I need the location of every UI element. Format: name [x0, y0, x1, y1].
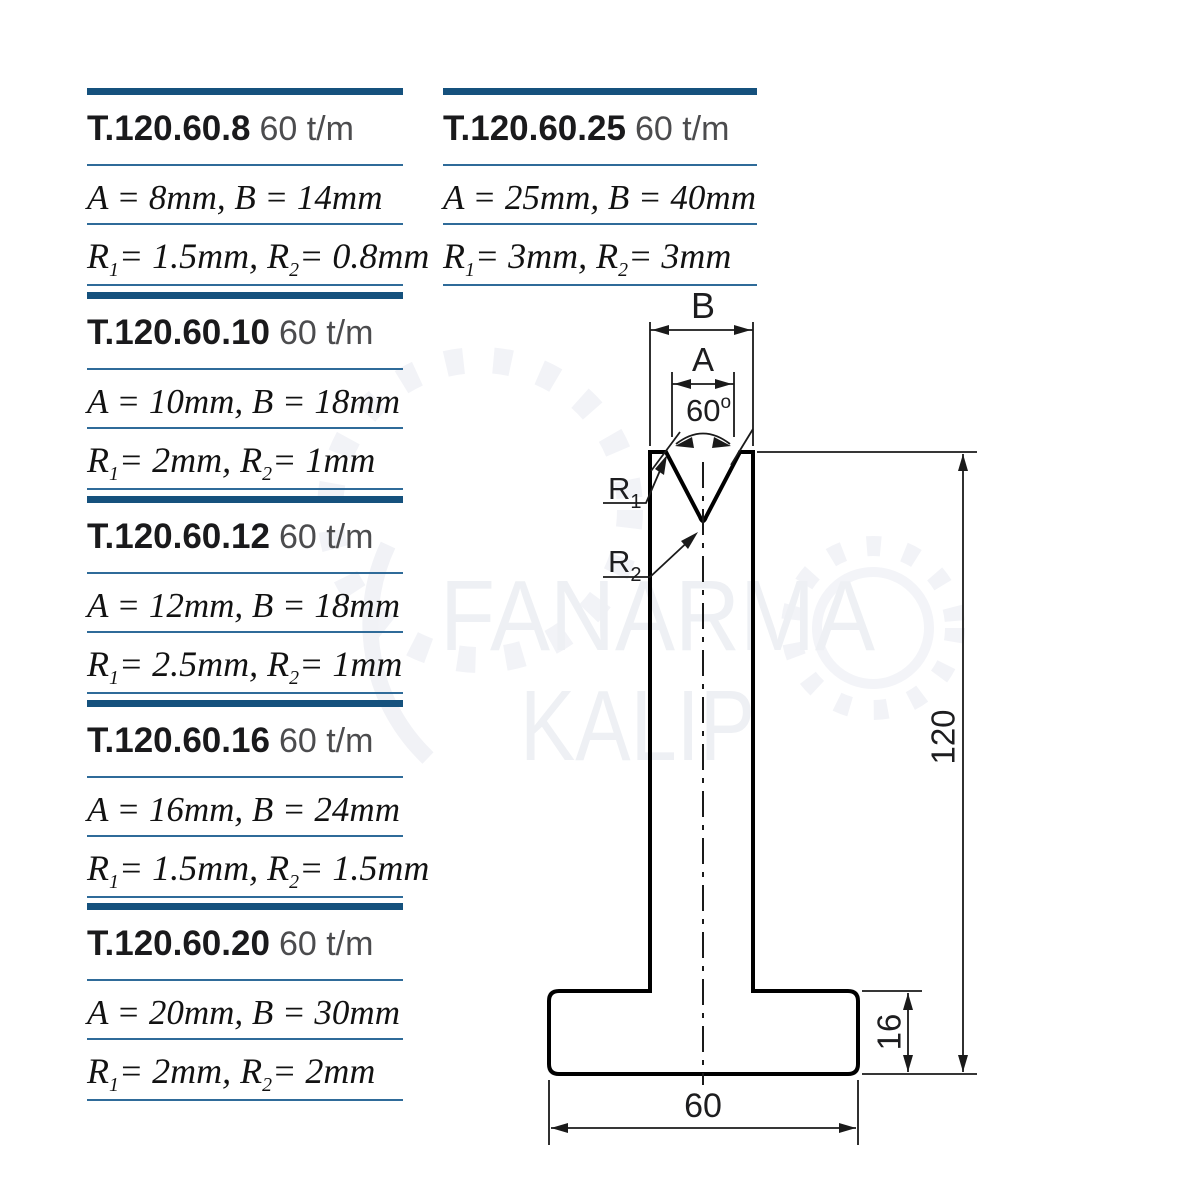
r1-subscript: 1 — [465, 259, 475, 281]
model-number: T.120.60.16 — [87, 721, 270, 760]
spec-title-row: T.120.60.2060 t/m — [87, 922, 403, 973]
separator-rule — [87, 368, 403, 370]
arrowhead-bottom — [958, 1055, 968, 1072]
spec-title-row: T.120.60.1060 t/m — [87, 311, 403, 362]
base-height-dimension-label: 16 — [871, 1014, 908, 1051]
angle-value: 60 — [686, 393, 720, 428]
tonnage: 60 t/m — [279, 722, 373, 760]
r1-value: = 2mm, R — [119, 1051, 262, 1091]
arrowhead-right — [839, 1123, 856, 1133]
die-technical-drawing: B A 60o R1 R2 — [520, 280, 1000, 1180]
spec-block-t1206012: T.120.60.1260 t/m A = 12mm, B = 18mm R1=… — [87, 496, 403, 694]
r2-value: = 1mm — [272, 440, 375, 480]
r1-name: R — [87, 1051, 109, 1091]
tonnage: 60 t/m — [279, 925, 373, 963]
separator-bar-thick — [87, 496, 403, 503]
separator-rule — [87, 427, 403, 429]
model-number: T.120.60.20 — [87, 924, 270, 963]
separator-bar-thick — [443, 88, 757, 95]
separator-rule — [87, 896, 403, 898]
r2-value: = 2mm — [272, 1051, 375, 1091]
r2-subscript: 2 — [289, 871, 299, 893]
arrowhead-bottom — [903, 1055, 913, 1072]
r2-value: = 3mm — [628, 236, 731, 276]
r1-value: = 2.5mm, R — [119, 644, 289, 684]
r2-subscript: 2 — [630, 564, 641, 586]
r1-subscript: 1 — [109, 1074, 119, 1096]
r2-subscript: 2 — [618, 259, 628, 281]
r2-value: = 0.8mm — [299, 236, 429, 276]
r2-value: = 1.5mm — [299, 848, 429, 888]
spec-title-row: T.120.60.1260 t/m — [87, 515, 403, 566]
arrowhead-top — [903, 993, 913, 1010]
dimensions-text: A = 8mm, B = 14mm — [87, 175, 403, 220]
radii-text: R1= 2mm, R2= 2mm — [87, 1048, 403, 1094]
r2-subscript: 2 — [289, 667, 299, 689]
separator-bar-thick — [87, 700, 403, 707]
r1-subscript: 1 — [630, 491, 641, 513]
r2-label: R2 — [608, 544, 642, 586]
separator-rule — [87, 164, 403, 166]
radii-text: R1= 1.5mm, R2= 0.8mm — [87, 233, 403, 279]
r1-name: R — [87, 236, 109, 276]
r2-subscript: 2 — [262, 463, 272, 485]
spec-block-t120608: T.120.60.860 t/m A = 8mm, B = 14mm R1= 1… — [87, 88, 403, 286]
r1-name: R — [443, 236, 465, 276]
r1-subscript: 1 — [109, 667, 119, 689]
spec-block-t1206010: T.120.60.1060 t/m A = 10mm, B = 18mm R1=… — [87, 292, 403, 490]
tonnage: 60 t/m — [279, 314, 373, 352]
dimensions-text: A = 10mm, B = 18mm — [87, 379, 403, 424]
arrowhead-right — [715, 379, 732, 389]
a-dimension-label: A — [692, 341, 714, 378]
r1-value: = 3mm, R — [475, 236, 618, 276]
separator-bar-thick — [87, 903, 403, 910]
arrowhead-top — [958, 454, 968, 471]
r1-value: = 2mm, R — [119, 440, 262, 480]
separator-rule — [87, 284, 403, 286]
spec-block-t1206020: T.120.60.2060 t/m A = 20mm, B = 30mm R1=… — [87, 903, 403, 1101]
r2-name: R — [608, 544, 630, 579]
model-number: T.120.60.12 — [87, 517, 270, 556]
angle-label: 60o — [686, 392, 731, 428]
height-dimension-label: 120 — [925, 709, 962, 764]
separator-rule — [87, 1038, 403, 1040]
r2-subscript: 2 — [262, 1074, 272, 1096]
r1-name: R — [608, 471, 630, 506]
r1-name: R — [87, 644, 109, 684]
separator-rule — [443, 223, 757, 225]
r1-name: R — [87, 848, 109, 888]
dimensions-text: A = 20mm, B = 30mm — [87, 990, 403, 1035]
r1-label: R1 — [608, 471, 642, 513]
base-width-dimension: 60 — [549, 1080, 858, 1145]
base-width-dimension-label: 60 — [684, 1087, 722, 1125]
radii-text: R1= 1.5mm, R2= 1.5mm — [87, 845, 403, 891]
spec-title-row: T.120.60.860 t/m — [87, 107, 403, 158]
model-number: T.120.60.8 — [87, 109, 250, 148]
arrowhead-right — [734, 325, 751, 335]
r1-subscript: 1 — [109, 871, 119, 893]
die-spec-sheet: FANARMA KALIP T.120.60.860 t/m A = 8mm, … — [0, 0, 1181, 1181]
separator-rule — [87, 776, 403, 778]
separator-rule — [443, 164, 757, 166]
model-number: T.120.60.10 — [87, 313, 270, 352]
radii-text: R1= 3mm, R2= 3mm — [443, 233, 757, 279]
tonnage: 60 t/m — [635, 110, 729, 148]
b-dimension-label: B — [691, 285, 715, 326]
dimensions-text: A = 25mm, B = 40mm — [443, 175, 757, 220]
arrowhead-left — [674, 379, 691, 389]
tonnage: 60 t/m — [279, 518, 373, 556]
degree-superscript: o — [720, 392, 731, 413]
separator-bar-thick — [87, 88, 403, 95]
separator-bar-thick — [87, 292, 403, 299]
dimensions-text: A = 16mm, B = 24mm — [87, 787, 403, 832]
separator-rule — [87, 488, 403, 490]
r2-subscript: 2 — [289, 259, 299, 281]
height-dimension: 120 — [757, 452, 977, 1074]
arrowhead-left — [551, 1123, 568, 1133]
r1-subscript: 1 — [109, 463, 119, 485]
spec-block-t1206025: T.120.60.2560 t/m A = 25mm, B = 40mm R1=… — [443, 88, 757, 286]
separator-rule — [87, 572, 403, 574]
tonnage: 60 t/m — [259, 110, 353, 148]
r1-value: = 1.5mm, R — [119, 236, 289, 276]
r1-value: = 1.5mm, R — [119, 848, 289, 888]
r1-subscript: 1 — [109, 259, 119, 281]
spec-title-row: T.120.60.2560 t/m — [443, 107, 757, 158]
model-number: T.120.60.25 — [443, 109, 626, 148]
spec-block-t1206016: T.120.60.1660 t/m A = 16mm, B = 24mm R1=… — [87, 700, 403, 898]
dimensions-text: A = 12mm, B = 18mm — [87, 583, 403, 628]
r1-name: R — [87, 440, 109, 480]
arrowhead-left — [652, 325, 669, 335]
base-height-dimension: 16 — [862, 991, 922, 1072]
radii-text: R1= 2.5mm, R2= 1mm — [87, 641, 403, 687]
separator-rule — [87, 223, 403, 225]
r2-value: = 1mm — [299, 644, 402, 684]
spec-title-row: T.120.60.1660 t/m — [87, 719, 403, 770]
separator-rule — [87, 1099, 403, 1101]
separator-rule — [87, 835, 403, 837]
separator-rule — [87, 692, 403, 694]
separator-rule — [87, 979, 403, 981]
radii-text: R1= 2mm, R2= 1mm — [87, 437, 403, 483]
separator-rule — [87, 631, 403, 633]
